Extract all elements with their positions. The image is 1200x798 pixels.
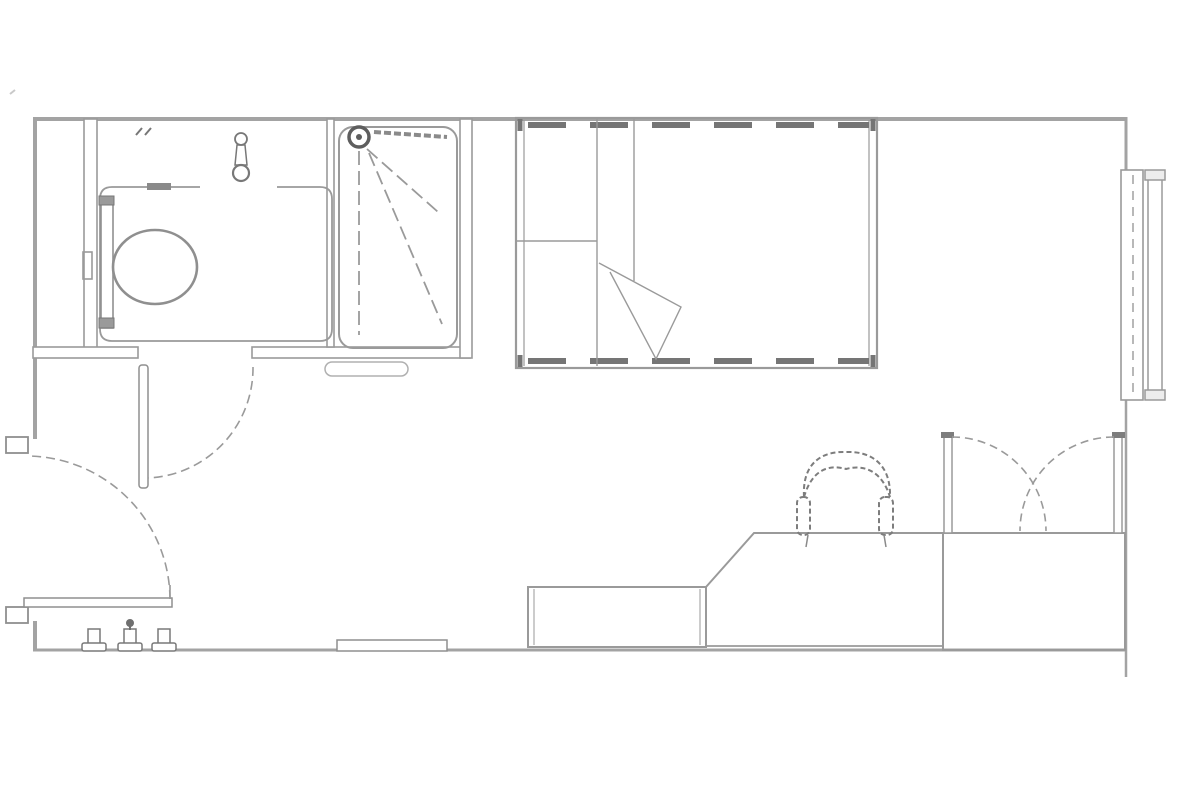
desk-return-unit — [528, 587, 706, 647]
toilet — [99, 196, 197, 328]
single-bed — [516, 118, 877, 368]
door-jamb-top — [6, 437, 28, 453]
chair-armrest-left — [797, 497, 810, 535]
bathroom-wall-left — [84, 119, 97, 348]
radiator-cap-bottom — [1145, 390, 1165, 400]
wardrobe-body — [943, 533, 1125, 650]
hook-icon — [118, 619, 142, 651]
hook-icon — [82, 629, 106, 651]
bathroom-wall-right — [460, 119, 472, 358]
bathroom-wall-bottom-left — [33, 347, 138, 358]
cistern-bracket-bottom — [99, 318, 114, 328]
bed-corner-ticks — [520, 119, 873, 367]
hook-icon — [152, 629, 176, 651]
radiator-cap-top — [1145, 170, 1165, 180]
shower — [325, 127, 457, 376]
bathroom-door-leaf — [139, 365, 148, 488]
desk-top-edge — [706, 533, 943, 587]
door-jamb-bottom — [6, 607, 28, 623]
shower-head-dot — [356, 134, 362, 140]
tap-spout — [233, 165, 249, 181]
toilet-cistern — [101, 197, 113, 328]
bathroom-door-swing-arc — [148, 367, 253, 478]
wet-room-floor — [100, 187, 332, 341]
cistern-bracket-top — [99, 196, 114, 205]
chair-leg-right — [884, 535, 886, 547]
wall-speck — [10, 90, 15, 94]
floor-plan-page — [0, 0, 1200, 798]
wardrobe-door-right — [1114, 435, 1122, 533]
vent-mark-icon — [136, 128, 151, 135]
wash-basin-tap-icon — [233, 133, 249, 181]
counter-tick — [147, 183, 171, 190]
radiator — [1148, 173, 1162, 397]
wall-hooks — [82, 619, 176, 651]
desk — [528, 533, 943, 647]
chair-leg-left — [806, 535, 808, 547]
shower-spray-lines — [359, 149, 442, 335]
tap-body — [235, 145, 247, 165]
window-frame — [1121, 170, 1143, 400]
folded-duvet — [599, 263, 681, 359]
shower-threshold — [325, 362, 408, 376]
chair-armrest-right — [879, 497, 893, 535]
shower-grab-bar — [374, 132, 447, 137]
entrance-door-leaf — [24, 598, 172, 607]
wardrobe — [941, 432, 1125, 650]
toilet-bowl — [113, 230, 197, 304]
bathroom-door — [139, 365, 253, 488]
chair-backrest-inner — [804, 467, 890, 497]
window-unit — [1121, 170, 1165, 400]
tap-handle — [235, 133, 247, 145]
skirting-vent — [337, 640, 447, 651]
floor-plan-drawing — [0, 0, 1200, 798]
bed-frame-dashes — [528, 125, 869, 361]
wardrobe-door-left — [944, 435, 952, 533]
shower-tray — [339, 127, 457, 348]
shower-partition — [327, 119, 334, 347]
bed-frame — [516, 118, 877, 368]
